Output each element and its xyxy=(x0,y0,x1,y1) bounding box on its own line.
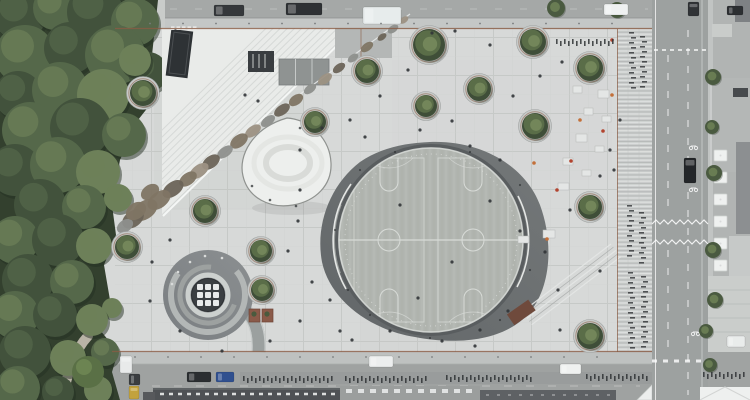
bike-tick xyxy=(608,41,610,46)
tree-highlight xyxy=(49,26,78,55)
bike-tick xyxy=(628,332,633,334)
bike-tick xyxy=(731,374,733,379)
bike-tick xyxy=(631,77,636,79)
market-stall xyxy=(595,146,604,152)
bike-tick xyxy=(631,47,636,49)
bike-tick xyxy=(275,376,277,381)
bike-tick xyxy=(630,287,635,289)
planter-tree xyxy=(519,110,552,143)
person-dot xyxy=(148,299,151,302)
bike-tick xyxy=(630,317,635,319)
bike-tick xyxy=(642,41,647,43)
person-dot xyxy=(268,339,271,342)
ring-speck xyxy=(519,184,521,186)
person-dot xyxy=(348,118,351,121)
bike-tick xyxy=(594,374,596,379)
bike-tick xyxy=(646,376,648,381)
vehicle xyxy=(688,2,699,16)
bollard xyxy=(182,23,184,25)
bike-tick xyxy=(629,240,634,242)
person-dot xyxy=(618,118,621,121)
vehicle-windshield xyxy=(216,7,223,15)
tree-highlight xyxy=(82,73,111,102)
vehicle-windshield xyxy=(131,388,138,391)
person-dot xyxy=(518,229,521,232)
dark-roof xyxy=(736,142,750,234)
person-dot xyxy=(556,288,559,291)
ring-speck xyxy=(394,151,396,153)
bike-tick xyxy=(486,375,488,380)
building-corner xyxy=(143,392,155,400)
bike-tick xyxy=(641,296,646,298)
vehicle-body xyxy=(129,386,139,399)
market-stall xyxy=(518,236,529,243)
vehicle-windshield xyxy=(606,6,611,14)
tree-light xyxy=(550,2,560,12)
bike-tick xyxy=(409,376,411,381)
person-dot xyxy=(440,339,443,342)
bollard xyxy=(464,356,466,358)
tree-light xyxy=(423,37,437,51)
market-stall xyxy=(598,90,609,98)
bike-tick xyxy=(474,377,476,382)
bike-tick xyxy=(586,374,588,379)
ring-speck xyxy=(469,151,471,153)
bike-tick xyxy=(421,378,423,383)
planter-tree xyxy=(517,26,550,59)
bollard xyxy=(380,23,382,25)
tree-light xyxy=(363,65,374,76)
bike-tick xyxy=(629,42,634,44)
bollard xyxy=(248,23,250,25)
bike-tick xyxy=(291,376,293,381)
bike-tick xyxy=(345,376,347,381)
tree-light xyxy=(585,61,597,73)
bollard xyxy=(578,23,580,25)
bike-tick xyxy=(612,39,614,44)
bike-tick xyxy=(323,376,325,381)
bike-tick xyxy=(614,376,616,381)
vehicle xyxy=(214,5,244,16)
umbrella-tip xyxy=(720,155,722,157)
vehicle xyxy=(727,6,743,15)
planter-tree xyxy=(127,77,160,110)
bike-tick xyxy=(602,374,604,379)
bike-tick xyxy=(560,41,562,46)
bike-tick xyxy=(259,376,261,381)
bike-tick xyxy=(642,71,647,73)
bike-tick xyxy=(743,372,745,377)
bike-tick xyxy=(735,372,737,377)
tree-light xyxy=(257,245,267,255)
person-dot xyxy=(310,280,313,283)
tree-highlight xyxy=(36,141,67,172)
bike-tick xyxy=(629,210,634,212)
vehicle-windshield xyxy=(288,5,296,14)
bike-tick xyxy=(462,375,464,380)
bike-tick xyxy=(353,376,355,381)
bike-tick xyxy=(641,257,646,259)
bike-tick xyxy=(506,377,508,382)
bike-tick xyxy=(643,301,648,303)
market-stall xyxy=(576,134,587,142)
person-dot xyxy=(450,260,453,263)
bike-tick xyxy=(639,222,644,224)
market-accent xyxy=(545,237,549,241)
bike-tick xyxy=(719,372,721,377)
person-dot xyxy=(150,260,153,263)
bike-tick xyxy=(556,39,558,44)
bike-tick xyxy=(629,72,634,74)
bollard xyxy=(299,356,301,358)
ring-speck xyxy=(369,314,371,316)
tree-highlight xyxy=(94,340,109,355)
planter-tree xyxy=(301,108,330,137)
bike-tick xyxy=(641,306,646,308)
person-dot xyxy=(388,329,391,332)
bike-tick xyxy=(642,81,647,83)
tree-light xyxy=(530,119,542,131)
bike-tick xyxy=(295,378,297,383)
bike-tick xyxy=(267,376,269,381)
bike-tick xyxy=(627,255,632,257)
vehicle xyxy=(604,4,628,15)
bike-tick xyxy=(628,312,633,314)
roof-sign xyxy=(733,88,748,97)
bike-tick xyxy=(711,372,713,377)
aerial-photo-plaza xyxy=(0,0,750,400)
bike-tick xyxy=(243,376,245,381)
tree-light xyxy=(258,284,268,294)
tree-light xyxy=(475,83,486,94)
umbrella-tip xyxy=(720,221,722,223)
planter-green xyxy=(251,311,256,316)
tree-light xyxy=(710,295,719,304)
tree-highlight xyxy=(80,153,104,177)
bike-tick xyxy=(641,286,646,288)
bike-tick xyxy=(446,375,448,380)
bike-tick xyxy=(639,212,644,214)
vehicle xyxy=(363,7,401,24)
bike-tick xyxy=(315,376,317,381)
bike-tick xyxy=(311,378,313,383)
tree-light xyxy=(705,360,713,368)
bike-tick xyxy=(357,378,359,383)
ring-speck xyxy=(334,229,336,231)
person-dot xyxy=(558,328,561,331)
bike-tick xyxy=(640,76,645,78)
bike-tick xyxy=(514,377,516,382)
person-dot xyxy=(453,29,456,32)
bike-tick xyxy=(629,62,634,64)
spiral-roof-dot xyxy=(171,283,174,286)
person-dot xyxy=(378,94,381,97)
bike-tick xyxy=(279,378,281,383)
vehicle xyxy=(120,356,132,373)
market-stall xyxy=(543,230,555,238)
umbrella-tip xyxy=(720,265,722,267)
bike-tick xyxy=(490,377,492,382)
bike-tick xyxy=(454,375,456,380)
tree-highlight xyxy=(79,306,97,324)
bike-tick xyxy=(639,252,644,254)
spiral-skylight-grid xyxy=(197,284,219,306)
person-dot xyxy=(168,238,171,241)
bollard xyxy=(545,23,547,25)
bike-tick xyxy=(251,376,253,381)
tree-highlight xyxy=(54,263,78,287)
bike-tick xyxy=(639,262,644,264)
person-dot xyxy=(418,128,421,131)
tree-highlight xyxy=(54,343,74,363)
tree-highlight xyxy=(37,296,61,320)
vehicle-body xyxy=(129,374,140,385)
bike-tick xyxy=(631,57,636,59)
bike-tick xyxy=(450,377,452,382)
bike-tick xyxy=(638,376,640,381)
umbrella-tip xyxy=(720,243,722,245)
tree-highlight xyxy=(4,330,33,359)
bike-tick xyxy=(283,376,285,381)
person-dot xyxy=(220,349,223,352)
bike-tick xyxy=(630,307,635,309)
vehicle-windshield xyxy=(218,374,222,381)
entry-path xyxy=(335,28,392,58)
bike-tick xyxy=(643,311,648,313)
bike-tick xyxy=(576,41,578,46)
bike-tick xyxy=(307,376,309,381)
bike-tick xyxy=(510,375,512,380)
bike-tick xyxy=(715,374,717,379)
person-dot xyxy=(488,43,491,46)
tree-highlight xyxy=(104,300,115,311)
bike-tick xyxy=(629,52,634,54)
bollard xyxy=(431,356,433,358)
bollard xyxy=(446,23,448,25)
mound-dot xyxy=(269,199,272,202)
spiral-roof-dot xyxy=(221,257,224,260)
bike-tick xyxy=(393,376,395,381)
bollard xyxy=(149,23,151,25)
spiral-roof-dot xyxy=(177,271,180,274)
tree-highlight xyxy=(7,258,36,287)
bollard xyxy=(596,356,598,358)
tree-light xyxy=(528,35,540,47)
bike-tick xyxy=(640,86,645,88)
bike-tick xyxy=(739,374,741,379)
person-dot xyxy=(243,93,246,96)
bike-tick xyxy=(518,375,520,380)
bike-tick xyxy=(628,302,633,304)
bike-tick xyxy=(626,374,628,379)
bike-tick xyxy=(641,326,646,328)
market-stall xyxy=(558,183,569,190)
bike-tick xyxy=(628,282,633,284)
bollard xyxy=(266,356,268,358)
bike-tick xyxy=(640,56,645,58)
bike-tick xyxy=(526,375,528,380)
bollard xyxy=(200,356,202,358)
bike-tick xyxy=(397,378,399,383)
market-accent xyxy=(569,159,573,163)
bike-tick xyxy=(627,215,632,217)
planter-tree xyxy=(410,26,449,65)
bollard xyxy=(563,356,565,358)
bike-tick xyxy=(641,336,646,338)
person-dot xyxy=(598,269,601,272)
tree-light xyxy=(708,245,717,254)
bike-tick xyxy=(588,39,590,44)
vehicle xyxy=(369,356,393,367)
bike-tick xyxy=(610,374,612,379)
vehicle xyxy=(129,374,140,385)
bike-tick xyxy=(349,378,351,383)
vehicle xyxy=(684,158,696,183)
vehicle xyxy=(560,364,581,374)
bike-tick xyxy=(365,378,367,383)
vehicle-windshield xyxy=(686,160,695,166)
bollard xyxy=(479,23,481,25)
tree-highlight xyxy=(0,75,25,101)
bollard xyxy=(347,23,349,25)
bike-tick xyxy=(327,378,329,383)
market-stall xyxy=(573,86,582,93)
bike-tick xyxy=(377,376,379,381)
tent-roof xyxy=(700,387,750,400)
ring-speck xyxy=(499,319,501,321)
ring-speck xyxy=(529,269,531,271)
bike-tick xyxy=(385,376,387,381)
bollard xyxy=(314,23,316,25)
person-dot xyxy=(296,219,299,222)
tree-light xyxy=(201,205,212,216)
bike-tick xyxy=(723,374,725,379)
person-dot xyxy=(320,126,323,129)
bike-tick xyxy=(627,205,632,207)
person-dot xyxy=(298,148,301,151)
tree-highlight xyxy=(116,2,142,28)
person-dot xyxy=(478,328,481,331)
spiral-roof-dot xyxy=(204,255,207,258)
bollard xyxy=(134,356,136,358)
person-dot xyxy=(468,144,471,147)
planter-tree xyxy=(464,74,495,105)
bike-tick xyxy=(417,376,419,381)
vehicle-windshield xyxy=(189,374,194,381)
tree-highlight xyxy=(122,46,140,64)
person-dot xyxy=(178,329,181,332)
person-dot xyxy=(328,298,331,301)
bike-tick xyxy=(564,39,566,44)
bike-tick xyxy=(727,372,729,377)
tree-highlight xyxy=(106,116,130,140)
person-dot xyxy=(473,344,476,347)
bike-tick xyxy=(522,377,524,382)
bike-tick xyxy=(466,377,468,382)
bike-tick xyxy=(643,321,648,323)
tree-highlight xyxy=(38,66,69,97)
bike-tick xyxy=(642,51,647,53)
mound-dot xyxy=(295,205,298,208)
person-dot xyxy=(363,135,366,138)
market-stall xyxy=(602,116,611,122)
planter-tree xyxy=(247,237,276,266)
bike-tick xyxy=(381,378,383,383)
market-accent xyxy=(578,118,582,122)
bike-tick xyxy=(634,374,636,379)
bike-tick xyxy=(628,322,633,324)
person-dot xyxy=(298,319,301,322)
planter-tree xyxy=(190,196,221,227)
planter-tree xyxy=(574,52,607,85)
bike-tick xyxy=(630,297,635,299)
vehicle-windshield xyxy=(365,9,373,23)
bike-tick xyxy=(303,378,305,383)
bike-tick xyxy=(606,376,608,381)
tree-highlight xyxy=(19,183,48,212)
tree-highlight xyxy=(56,103,89,136)
bike-tick xyxy=(629,220,634,222)
dark-roof xyxy=(480,390,616,400)
tree-highlight xyxy=(107,186,122,201)
ring-speck xyxy=(359,169,361,171)
bike-tick xyxy=(640,46,645,48)
person-dot xyxy=(488,199,491,202)
bike-tick xyxy=(628,342,633,344)
bike-tick xyxy=(299,376,301,381)
bike-tick xyxy=(631,87,636,89)
bike-tick xyxy=(319,378,321,383)
bollard xyxy=(281,23,283,25)
bike-tick xyxy=(631,67,636,69)
bike-tick xyxy=(629,250,634,252)
bollard xyxy=(398,356,400,358)
bike-tick xyxy=(629,230,634,232)
bike-tick xyxy=(622,376,624,381)
bike-tick xyxy=(631,37,636,39)
vehicle-windshield xyxy=(122,358,131,362)
bike-tick xyxy=(630,327,635,329)
planter-green xyxy=(264,311,269,316)
bike-tick xyxy=(630,277,635,279)
bike-tick xyxy=(271,378,273,383)
vehicle-windshield xyxy=(690,4,698,7)
planter-tree xyxy=(412,92,441,121)
bike-tick xyxy=(627,235,632,237)
bike-tick xyxy=(640,66,645,68)
person-dot xyxy=(543,250,546,253)
mound-dot xyxy=(299,127,302,130)
umbrella-tip xyxy=(720,199,722,201)
person-dot xyxy=(416,296,419,299)
bike-tick xyxy=(502,375,504,380)
planter-tree xyxy=(575,192,606,223)
bike-tick xyxy=(641,346,646,348)
mound-dot xyxy=(251,185,254,188)
vehicle xyxy=(216,372,234,382)
bike-tick xyxy=(413,378,415,383)
bike-tick xyxy=(641,237,646,239)
vehicle-windshield xyxy=(729,338,733,346)
bollard xyxy=(497,356,499,358)
bike-tick xyxy=(641,227,646,229)
bike-tick xyxy=(530,377,532,382)
spiral-roof-dot xyxy=(189,261,192,264)
bike-tick xyxy=(596,39,598,44)
light-roof xyxy=(712,24,732,37)
bike-tick xyxy=(641,276,646,278)
tree-light xyxy=(123,241,134,252)
